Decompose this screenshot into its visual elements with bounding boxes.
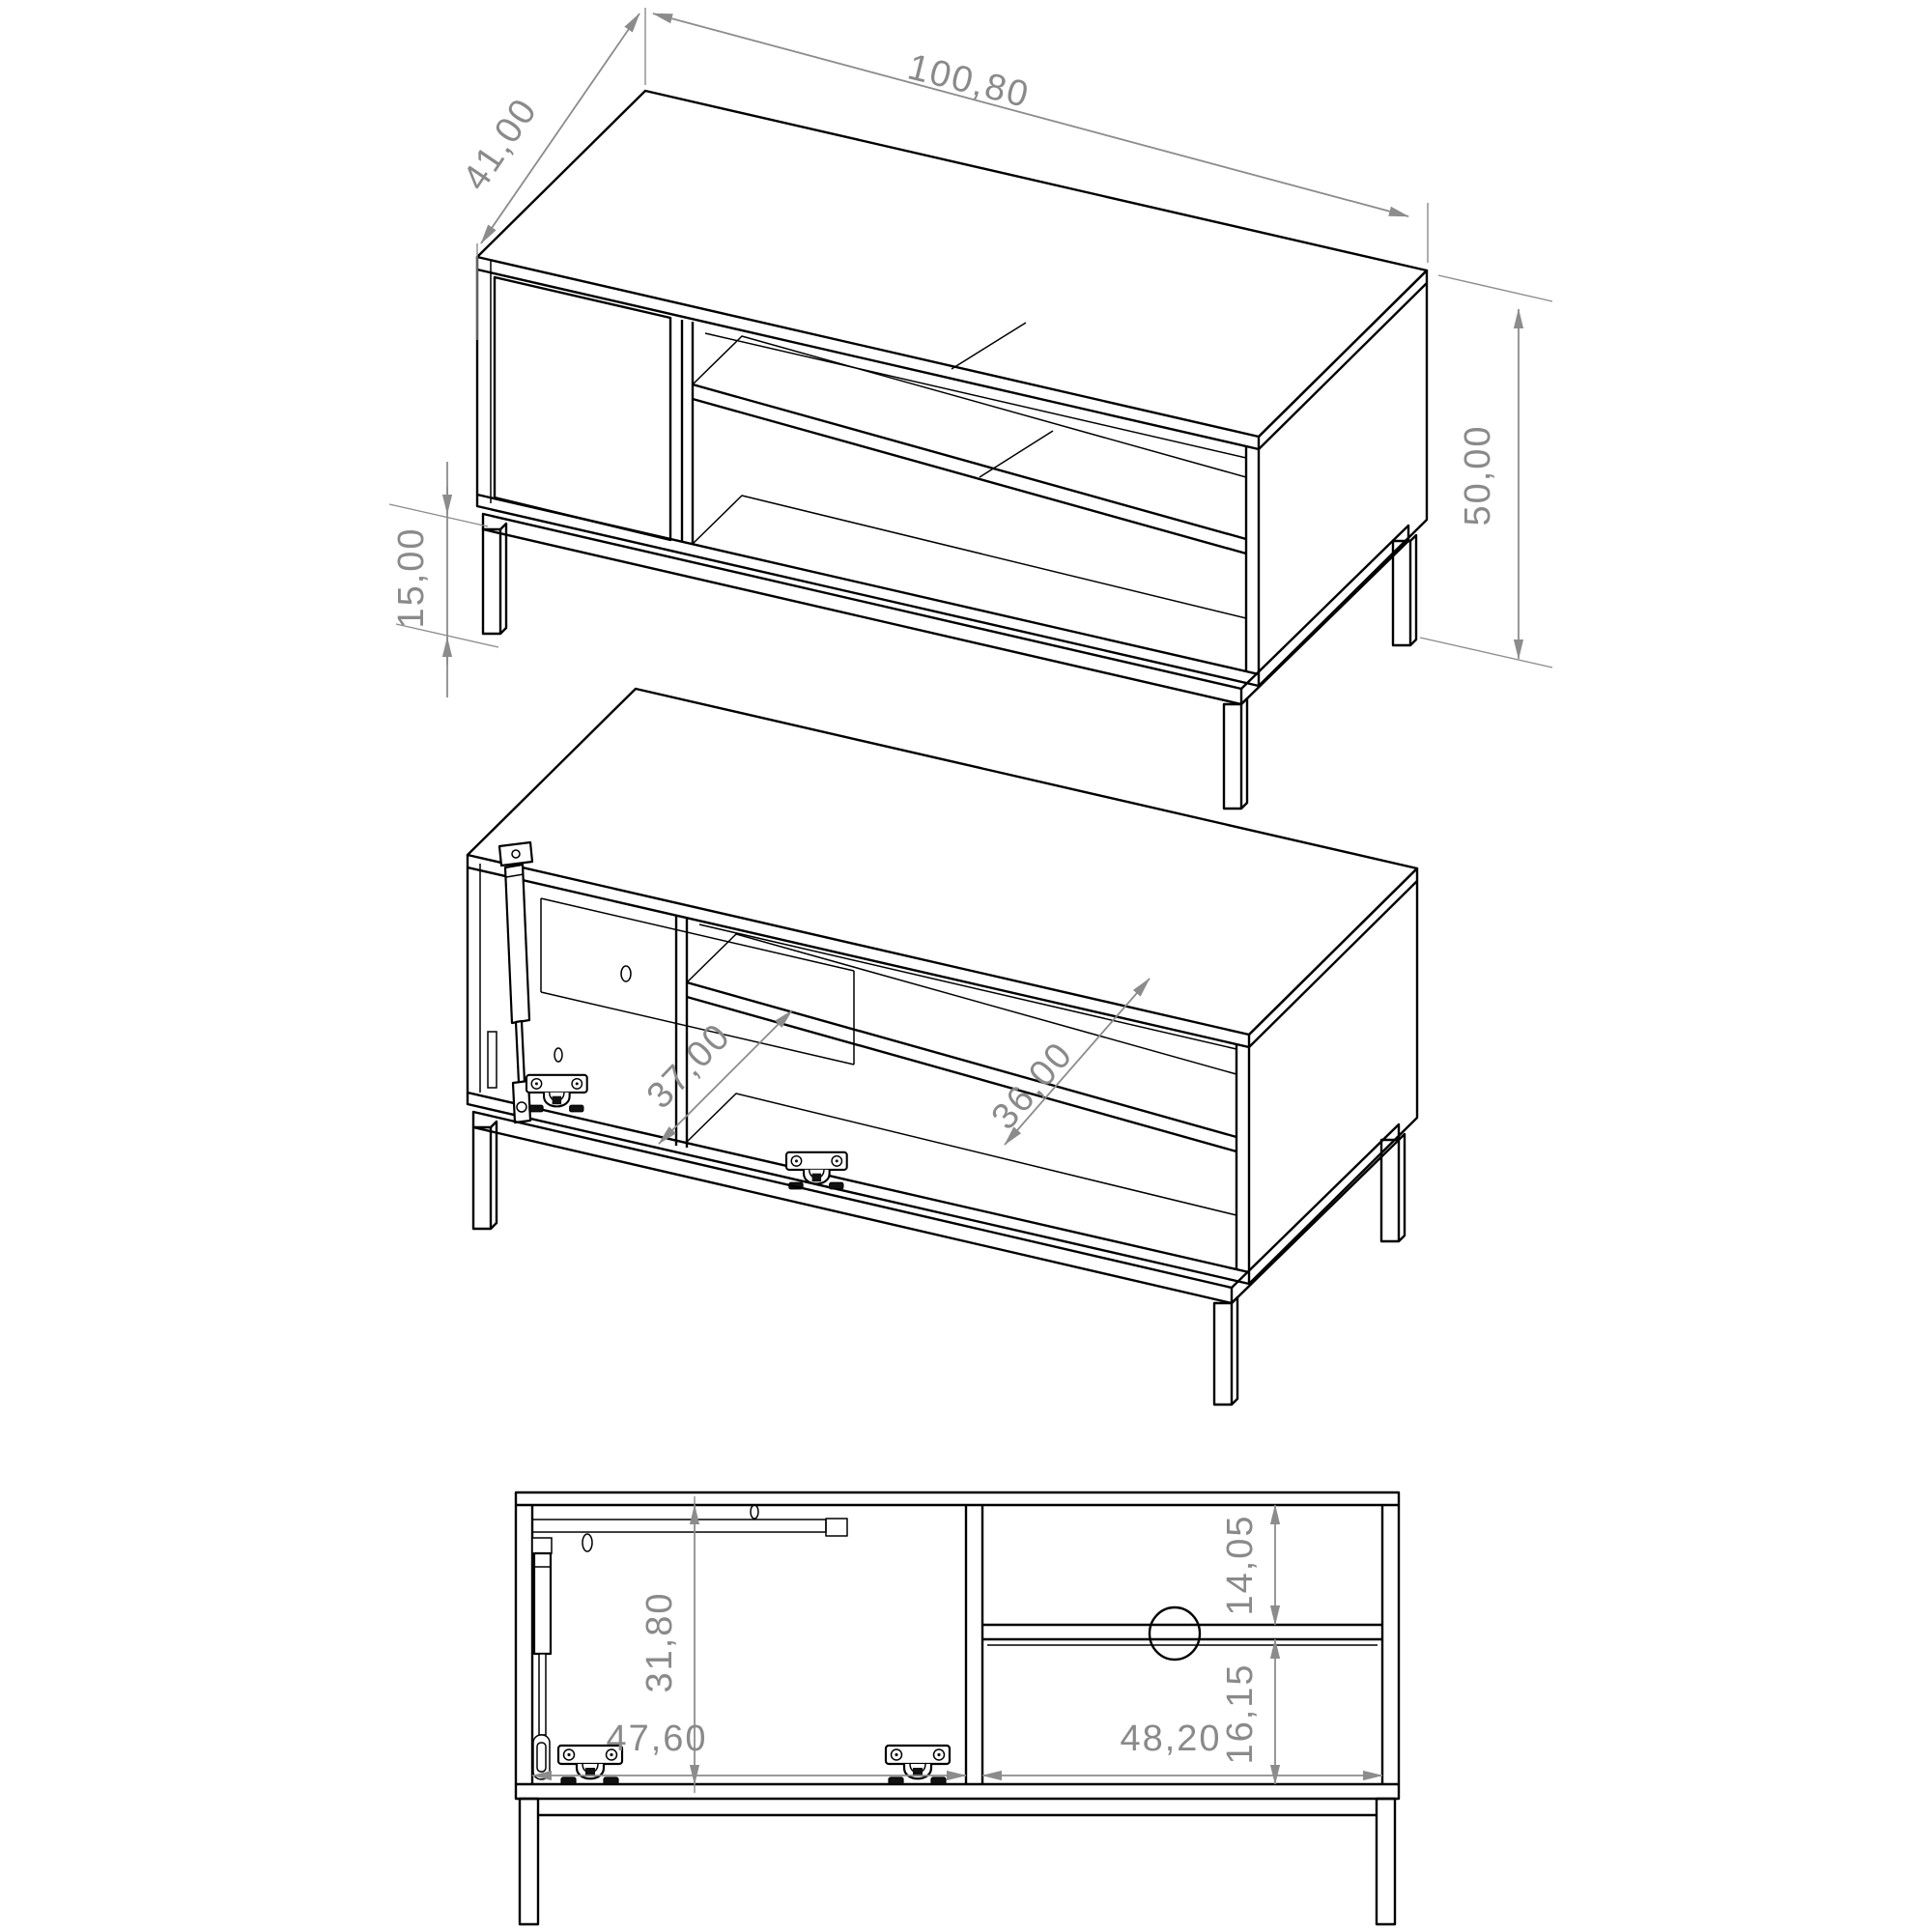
view-front-elevation: 31,80 47,60 48,20 14,05 16,15 [516,1492,1399,1924]
dim-left-width-label: 47,60 [606,1719,707,1759]
view-isometric-open: 37,00 36,00 [468,689,1417,1405]
shelf-front-view [982,1607,1382,1660]
leg-front-right [1214,1297,1237,1405]
technical-drawing-page: 100,80 41,00 50,00 15,00 [0,0,1932,1932]
leg-front-left [473,1122,497,1229]
metal-frame-front [520,1799,1395,1924]
cabinet-front-outline [516,1492,1399,1924]
dim-interior-height-label: 31,80 [639,1591,680,1692]
dim-width-label: 100,80 [904,46,1035,116]
dim-right-width-label: 48,20 [1120,1719,1221,1759]
metal-frame [483,514,1416,809]
shelf-pin-hole [554,1048,562,1062]
leg-front-left [483,524,506,634]
gas-strut-front-icon [532,1538,552,1779]
dimensions-view2: 37,00 36,00 [639,979,1150,1145]
cable-hole [1150,1607,1200,1660]
view-isometric-closed: 100,80 41,00 50,00 15,00 [389,8,1552,809]
dim-left-depth-label: 37,00 [639,1015,739,1117]
leg-front-right [1224,698,1247,809]
dim-height-label: 50,00 [1458,424,1498,526]
metal-frame-open-view [473,1112,1405,1405]
door-front-closed [495,277,670,540]
dim-shelf-depth-label: 36,00 [984,1035,1082,1138]
dim-depth-label: 41,00 [455,91,546,198]
dimensions-view1: 100,80 41,00 50,00 15,00 [389,8,1552,697]
dim-shelf-upper-label: 14,05 [1220,1514,1261,1615]
middle-shelf [693,336,1246,554]
open-door-edge [532,1505,847,1551]
dim-leg-height-label: 15,00 [391,526,432,628]
shelf-pin-hole [621,966,631,981]
cabinet-outline-closed [477,91,1427,809]
furniture-drawing-svg: 100,80 41,00 50,00 15,00 [0,0,1932,1932]
cabinet-outline-open [468,689,1417,1405]
middle-shelf-open-view [687,934,1236,1151]
dim-shelf-lower-label: 16,15 [1220,1662,1261,1764]
